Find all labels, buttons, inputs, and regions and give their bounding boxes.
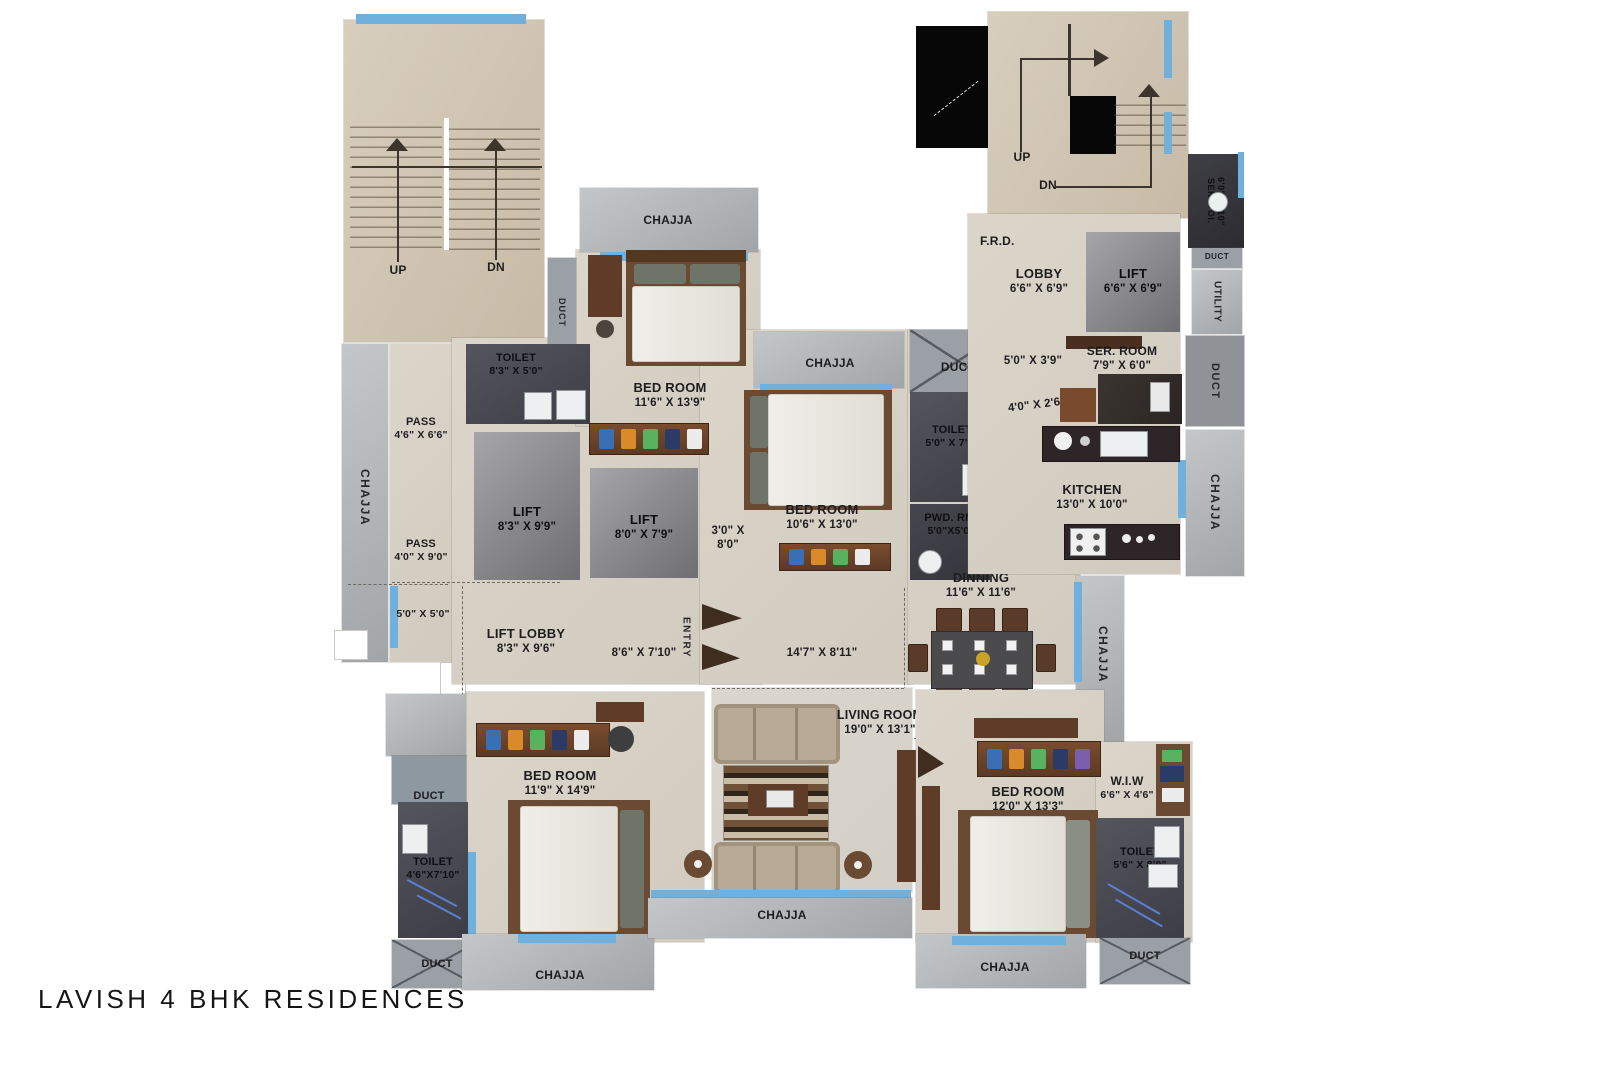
stair-line [352, 166, 542, 168]
window-strip [1164, 20, 1172, 78]
stair-arrow-line [1020, 58, 1096, 60]
mattress [520, 806, 618, 932]
plate [1006, 664, 1017, 675]
duct-top-label: DUCT [548, 276, 576, 348]
pillow [1066, 820, 1090, 928]
lobby-label: LOBBY 6'6" X 6'9" [994, 266, 1084, 296]
room-name: PASS [392, 538, 450, 551]
boundary-dashed [392, 582, 560, 583]
kitchen-label: KITCHEN 13'0" X 10'0" [1036, 482, 1148, 512]
room-dims: 10'6" X 13'0" [760, 518, 884, 532]
arrow-up-icon [386, 138, 408, 151]
ledge [334, 630, 368, 660]
arrow-right-icon [1094, 49, 1109, 67]
clothes-item [987, 749, 1002, 769]
room-name: TOILET [396, 856, 470, 869]
room-dims: 11'6" X 11'6" [926, 586, 1036, 600]
pillow [634, 264, 686, 284]
room-dims: 8'0" X 7'9" [596, 528, 692, 542]
clothes-item [599, 429, 614, 449]
clothes-item [855, 549, 870, 565]
dining-chair [936, 608, 962, 632]
room-dims: 11'6" X 13'9" [608, 396, 732, 410]
clothes-item [552, 730, 567, 750]
wardrobe [477, 724, 609, 756]
clothes-item [789, 549, 804, 565]
room-name: KITCHEN [1036, 482, 1148, 498]
stair-dn-label: DN [475, 260, 517, 275]
clothes-item [1162, 788, 1184, 802]
headboard [626, 250, 746, 262]
dim-5x39-label: 5'0" X 3'9" [1000, 354, 1066, 368]
dining-label: DINNING 11'6" X 11'6" [926, 570, 1036, 600]
side-table-dot [854, 861, 862, 869]
dim-3x8-label: 3'0" X 8'0" [704, 524, 752, 552]
clothes-item [1075, 749, 1090, 769]
plate [942, 640, 953, 651]
pillow [750, 452, 768, 504]
clothes-item [530, 730, 545, 750]
sofa [714, 704, 840, 764]
boundary-dashed [348, 584, 448, 585]
office-chair [608, 726, 634, 752]
tray [766, 790, 794, 808]
window-strip [952, 936, 1066, 945]
mattress [970, 816, 1066, 932]
clothes-item [1053, 749, 1068, 769]
clothes-item [687, 429, 702, 449]
basin [1208, 192, 1228, 212]
window-strip [1074, 582, 1082, 682]
window-strip [1178, 460, 1186, 518]
room-dims: 8'3" X 5'0" [468, 365, 564, 378]
clothes-item [486, 730, 501, 750]
toilet-fixture [524, 392, 552, 420]
void-cutout [1070, 96, 1116, 154]
wardrobe [590, 424, 708, 454]
stair-arrow-line [1150, 96, 1152, 188]
lift-mid-label: LIFT 8'0" X 7'9" [596, 512, 692, 542]
room-dims: 4'0" X 9'0" [392, 551, 450, 564]
servant-room-label: SER. ROOM 7'9" X 6'0" [1076, 344, 1168, 373]
dresser [780, 544, 890, 570]
lift-right-label: LIFT 6'6" X 6'9" [1090, 266, 1176, 296]
room-name: BED ROOM [608, 380, 732, 396]
kitchen-bowl [1054, 432, 1072, 450]
chajja-left-label: CHAJJA [342, 440, 388, 555]
sofa [714, 842, 840, 894]
pillow [620, 810, 644, 928]
room-name: BED ROOM [966, 784, 1090, 800]
chajja-mid-label: CHAJJA [780, 356, 880, 371]
hob-dot [1122, 534, 1131, 543]
pass-lower-label: PASS 4'0" X 9'0" [392, 538, 450, 564]
room-name: LIFT [478, 504, 576, 520]
clothes-item [1009, 749, 1024, 769]
chajja-top-label: CHAJJA [612, 213, 724, 228]
toilet-fixture [1154, 826, 1180, 858]
room-dims: 4'6" X 6'6" [392, 429, 450, 442]
chajja-bottom-left-label: CHAJJA [518, 968, 602, 983]
room-name: BED ROOM [498, 768, 622, 784]
stove [1070, 528, 1106, 556]
toilet-fixture [1148, 864, 1178, 888]
desk [588, 255, 622, 317]
dim-5x5-label: 5'0" X 5'0" [388, 608, 458, 621]
stair-arrow-line [397, 150, 399, 262]
chajja-bottom-center-label: CHAJJA [740, 908, 824, 923]
toilet-top-label: TOILET 8'3" X 5'0" [468, 352, 564, 378]
clothes-item [643, 429, 658, 449]
clothes-item [833, 549, 848, 565]
room-name: LIFT [596, 512, 692, 528]
lift-lobby-label: LIFT LOBBY 8'3" X 9'6" [476, 626, 576, 656]
window-strip [1164, 112, 1172, 154]
pass-upper-label: PASS 4'6" X 6'6" [392, 416, 450, 442]
clothes-item [665, 429, 680, 449]
pillow [750, 396, 768, 448]
window-strip [468, 852, 476, 934]
utility-label: UTILITY [1192, 272, 1242, 332]
room-name: LIFT [1090, 266, 1176, 282]
stair-dn-label: DN [1028, 178, 1068, 193]
mattress [768, 394, 884, 506]
pillow [690, 264, 740, 284]
void-hatch [934, 81, 979, 116]
plate [942, 664, 953, 675]
dresser [974, 718, 1078, 738]
duct-small-label: DUCT [1194, 252, 1240, 262]
void-cutout [916, 26, 988, 148]
centerpiece [976, 652, 990, 666]
room-dims: 13'0" X 10'0" [1036, 498, 1148, 512]
stair-arrow-line [495, 150, 497, 260]
floor-plan: UP DN CHAJJA PASS 4'6" X 6'6" PASS 4'0" … [0, 0, 1600, 1067]
bedroom-top-label: BED ROOM 11'6" X 13'9" [608, 380, 732, 410]
dining-chair [1036, 644, 1056, 672]
lift-left-label: LIFT 8'3" X 9'9" [478, 504, 576, 534]
room-dims: 6'6" X 6'9" [1090, 282, 1176, 296]
clothes-item [1031, 749, 1046, 769]
kitchen-sink [1100, 431, 1148, 457]
arrow-up-icon [484, 138, 506, 151]
plate [974, 640, 985, 651]
bedroom-bl-label: BED ROOM 11'9" X 14'9" [498, 768, 622, 798]
duct-right-label: DUCT [1186, 344, 1244, 418]
room-dims: 8'3" X 9'9" [478, 520, 576, 534]
boundary-dashed [712, 688, 904, 689]
window-strip [518, 934, 616, 943]
clothes-item [1160, 766, 1184, 782]
room-dims: 11'9" X 14'9" [498, 784, 622, 798]
clothes-item [811, 549, 826, 565]
stair-up-label: UP [377, 263, 419, 278]
room-name: LIFT LOBBY [476, 626, 576, 642]
dining-chair [908, 644, 928, 672]
plate [1006, 640, 1017, 651]
arrow-up-icon [1138, 84, 1160, 97]
room-name: BED ROOM [760, 502, 884, 518]
chair [596, 320, 614, 338]
toilet-fixture [402, 824, 428, 854]
room-dims: 8'3" X 9'6" [476, 642, 576, 656]
wardrobe [978, 742, 1100, 776]
duct-bl-lower-label: DUCT [410, 958, 464, 971]
room-name: PASS [392, 416, 450, 429]
duct-bottom-right-label: DUCT [1118, 950, 1172, 963]
chajja-right-label: CHAJJA [1186, 448, 1244, 558]
chajja-bottom-right-label: CHAJJA [962, 960, 1048, 975]
kitchen-bowl [1080, 436, 1090, 446]
ledge-gray [386, 694, 466, 756]
room-name: SER. ROOM [1076, 344, 1168, 359]
stair-arrow-line [1020, 58, 1022, 152]
window-strip [356, 14, 526, 24]
clothes-item [621, 429, 636, 449]
stair-divider [444, 118, 449, 250]
dim-147x811-label: 14'7" X 8'11" [768, 646, 876, 660]
dining-chair [1002, 608, 1028, 632]
desk [596, 702, 644, 722]
clothes-item [1162, 750, 1182, 762]
clothes-item [508, 730, 523, 750]
entry-label: ENTRY [676, 610, 696, 666]
plan-title: LAVISH 4 BHK RESIDENCES [38, 984, 598, 1015]
room-name: TOILET [468, 352, 564, 365]
room-dims: 6'6" X 6'9" [994, 282, 1084, 296]
side-table [1060, 388, 1096, 422]
window-strip [1238, 152, 1244, 198]
clothes-item [574, 730, 589, 750]
dining-chair [969, 608, 995, 632]
room-name: LOBBY [994, 266, 1084, 282]
tv-console [897, 750, 917, 882]
pillow [1150, 382, 1170, 412]
bedroom-mid-label: BED ROOM 10'6" X 13'0" [760, 502, 884, 532]
stair-arrow-line [1056, 186, 1152, 188]
hob-dot [1136, 536, 1143, 543]
stair-rail [1068, 24, 1071, 96]
side-table-dot [694, 860, 702, 868]
dresser [922, 786, 940, 910]
toilet-fixture [556, 390, 586, 420]
frd-label: F.R.D. [980, 234, 1042, 249]
room-dims: 7'9" X 6'0" [1076, 359, 1168, 373]
hob-dot [1148, 534, 1155, 541]
stair-up-label: UP [1002, 150, 1042, 165]
mattress [632, 286, 740, 362]
